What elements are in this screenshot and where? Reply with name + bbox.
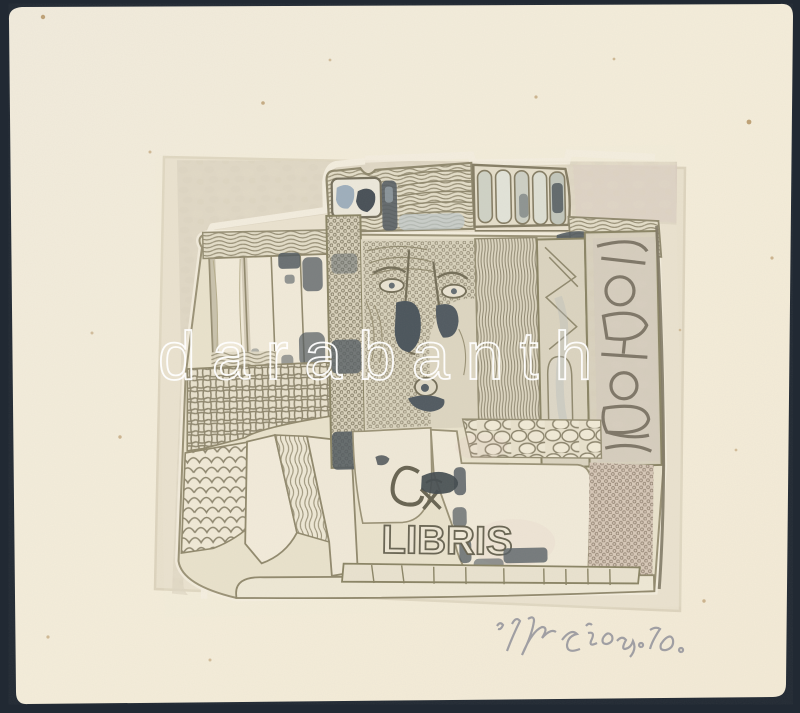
- svg-text:darabanth: darabanth: [158, 318, 608, 394]
